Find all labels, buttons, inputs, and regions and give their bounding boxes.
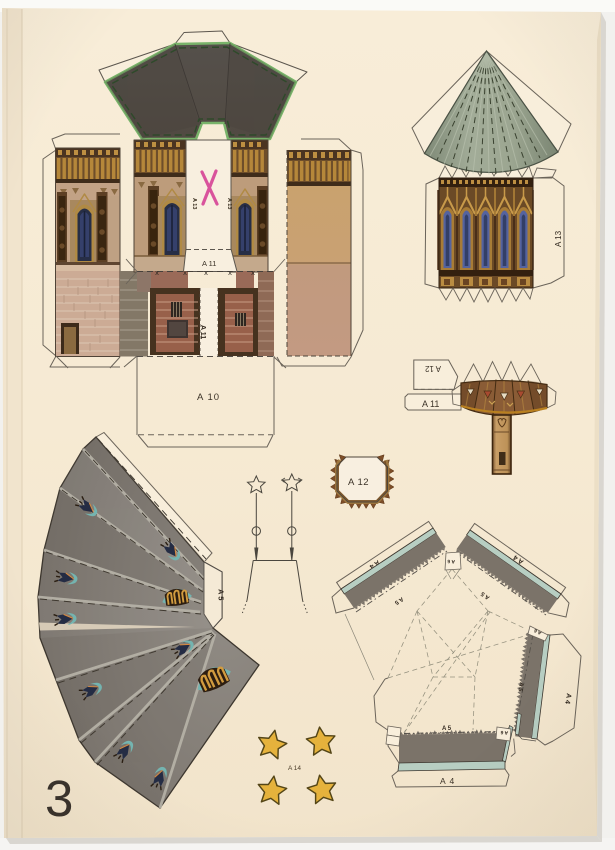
svg-text:3: 3 [45, 770, 73, 827]
